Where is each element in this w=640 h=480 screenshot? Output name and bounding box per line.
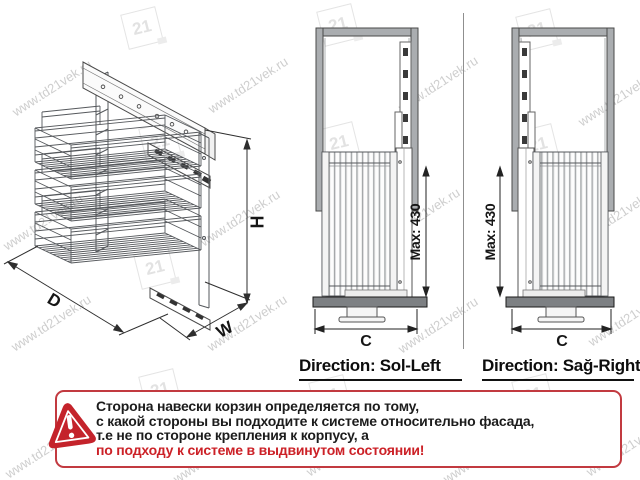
- front-view-right: [460, 20, 620, 342]
- brand-logo-number: 21: [130, 16, 153, 40]
- warning-line: Сторона навески корзин определяется по т…: [96, 399, 534, 414]
- brand-logo-watermark: 21: [120, 6, 164, 50]
- warning-line: т.е не по стороне крепления к корпусу, а: [96, 428, 534, 443]
- warning-text: Сторона навески корзин определяется по т…: [96, 399, 534, 457]
- wire-basket-bottom: [35, 190, 201, 263]
- view-divider-line: [463, 13, 464, 349]
- brand-logo-tab: [157, 37, 167, 45]
- height-dimension: [423, 167, 429, 296]
- direction-label-right: Direction: Sağ-Right: [482, 356, 634, 381]
- warning-line: с какой стороны вы подходите к системе о…: [96, 414, 534, 429]
- width-label-left: C: [360, 333, 372, 351]
- basket-front: [322, 152, 397, 296]
- front-column: [199, 133, 209, 308]
- direction-label-left: Direction: Sol-Left: [299, 356, 462, 381]
- front-view-left: [300, 20, 450, 342]
- dimension-label-height: H: [248, 216, 269, 229]
- max-height-label-right: Max: 430: [482, 204, 498, 261]
- basket-front: [533, 152, 608, 296]
- bottom-slide-rail: [150, 288, 210, 330]
- width-label-right: C: [556, 333, 568, 351]
- warning-triangle-icon: [41, 398, 99, 453]
- warning-line-highlight: по подходу к системе в выдвинутом состоя…: [96, 443, 534, 458]
- carriage-column: [518, 148, 534, 297]
- catalog-diagram-page: www.td21vek.ru www.td21vek.ru www.td21ve…: [0, 0, 640, 480]
- max-height-label-left: Max: 430: [407, 204, 423, 261]
